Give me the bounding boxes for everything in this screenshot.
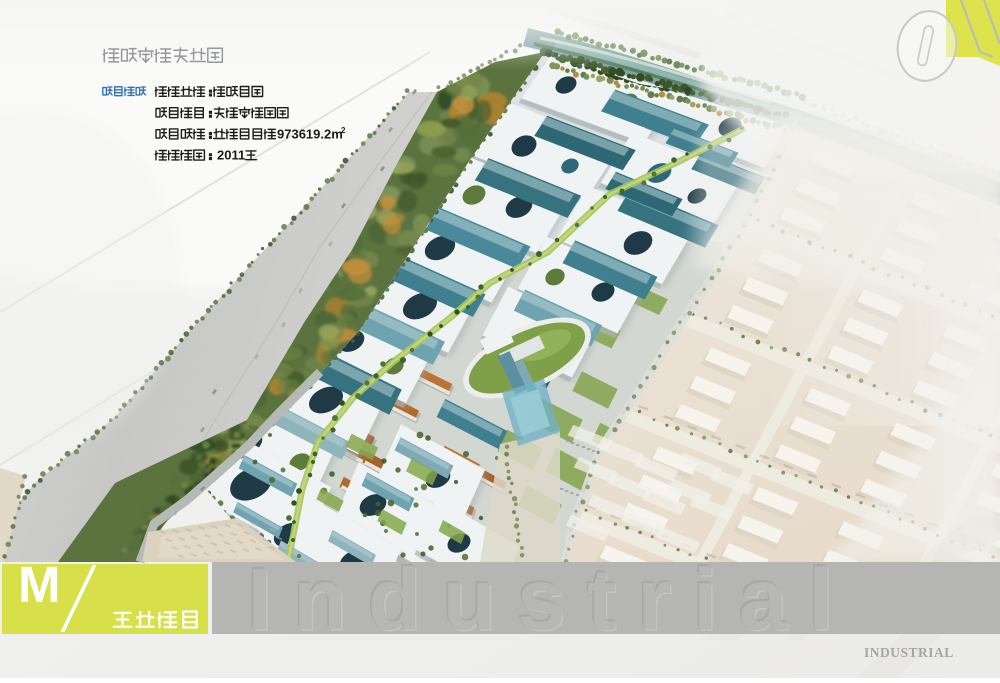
svg-text:Industrial: Industrial — [248, 552, 855, 648]
svg-text:973619.2m: 973619.2m — [277, 127, 343, 142]
svg-text:INDUSTRIAL: INDUSTRIAL — [864, 645, 954, 660]
svg-text:2: 2 — [341, 126, 346, 135]
svg-text:M: M — [18, 556, 60, 613]
svg-text:2011: 2011 — [217, 148, 245, 163]
